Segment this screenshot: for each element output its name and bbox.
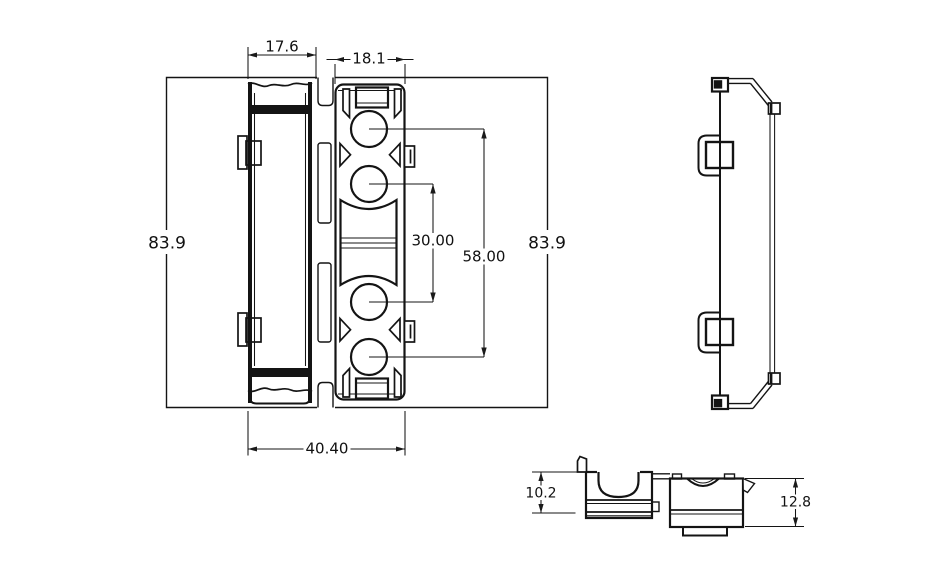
channel-band-bottom (252, 368, 309, 377)
technical-drawing: 17.6 18.1 30.00 58.00 (0, 0, 948, 572)
saddle-outline (586, 472, 652, 518)
right-clip-tab (405, 146, 415, 167)
saddle-top-tab (578, 457, 587, 473)
dim-label-slot-width: 18.1 (352, 50, 385, 68)
saddle-notch-mask (597, 469, 640, 476)
mounting-section (336, 85, 415, 400)
bottom-notch (318, 383, 333, 408)
arrowhead (248, 447, 257, 452)
dim-hole-pitch-inner: 30.00 (411, 184, 455, 302)
detail-view: 10.2 12.8 (524, 457, 815, 536)
dim-hole-pitch-outer: 58.00 (461, 129, 507, 357)
body-top-arc (687, 479, 719, 487)
top-notch (318, 78, 333, 106)
arrowhead (396, 447, 405, 452)
bottom-angled-arm (751, 382, 773, 409)
top-hook-tab-fill (714, 80, 722, 88)
dim-saddle-height: 10.2 (524, 472, 585, 513)
bottom-arm (728, 404, 754, 409)
top-arm (728, 79, 754, 84)
technical-drawing-page: 17.6 18.1 30.00 58.00 (0, 0, 948, 572)
top-angled-arm (751, 79, 773, 106)
dim-label-channel-width: 17.6 (265, 38, 298, 56)
break-line-top (248, 83, 312, 86)
side-triangle (340, 319, 351, 342)
side-triangle (340, 144, 351, 167)
dim-slot-width: 18.1 (327, 50, 414, 85)
arrowhead (481, 129, 486, 139)
saddle-rib-line (586, 504, 652, 516)
mid-slot-lower (318, 263, 331, 342)
channel-band-top (252, 105, 309, 114)
bottom-blade (343, 369, 350, 398)
side-triangle (390, 319, 401, 342)
saddle-rib (586, 500, 652, 512)
dim-label-hole-pitch-inner: 30.00 (412, 232, 455, 250)
dim-label-body-height: 12.8 (780, 495, 811, 511)
dim-label-height-right: 83.9 (528, 234, 566, 254)
spring-face (770, 114, 775, 373)
bottom-blade (395, 369, 402, 398)
arrowhead (248, 53, 257, 58)
break-line-bottom (248, 388, 312, 391)
dim-height-left: 83.9 (148, 230, 186, 254)
mid-slot-upper (318, 143, 331, 223)
arrowhead (307, 53, 316, 58)
side-view (699, 78, 781, 409)
link-bar (652, 474, 670, 479)
arrowhead (335, 57, 344, 62)
dim-label-height-left: 83.9 (148, 234, 186, 254)
saddle-u-notch (599, 472, 639, 497)
front-view: 17.6 18.1 30.00 58.00 (148, 38, 566, 458)
arrowhead (538, 504, 543, 513)
bottom-tab (356, 379, 388, 399)
right-clip-tab (405, 321, 415, 342)
arrowhead (793, 518, 798, 527)
dim-base-width: 40.40 (248, 411, 405, 458)
arrowhead (396, 57, 405, 62)
channel-bottom-tray (250, 393, 310, 404)
dim-label-hole-pitch-outer: 58.00 (463, 248, 506, 266)
top-blade (343, 89, 350, 118)
dim-label-base-width: 40.40 (306, 440, 349, 458)
body-bottom-tab (683, 527, 727, 536)
arrowhead (481, 348, 486, 358)
dim-label-saddle-height: 10.2 (525, 486, 556, 502)
arrowhead (538, 472, 543, 481)
bottom-hook-tab-fill (714, 399, 722, 407)
side-triangle (390, 144, 401, 167)
channel (238, 82, 312, 404)
arrowhead (430, 184, 435, 194)
dim-channel-width: 17.6 (248, 38, 316, 80)
dim-height-right: 83.9 (528, 230, 566, 254)
arrowhead (430, 293, 435, 303)
arrowhead (793, 479, 798, 488)
dim-body-height: 12.8 (745, 479, 815, 527)
top-blade (395, 89, 402, 118)
body-corner-flap (743, 479, 755, 493)
